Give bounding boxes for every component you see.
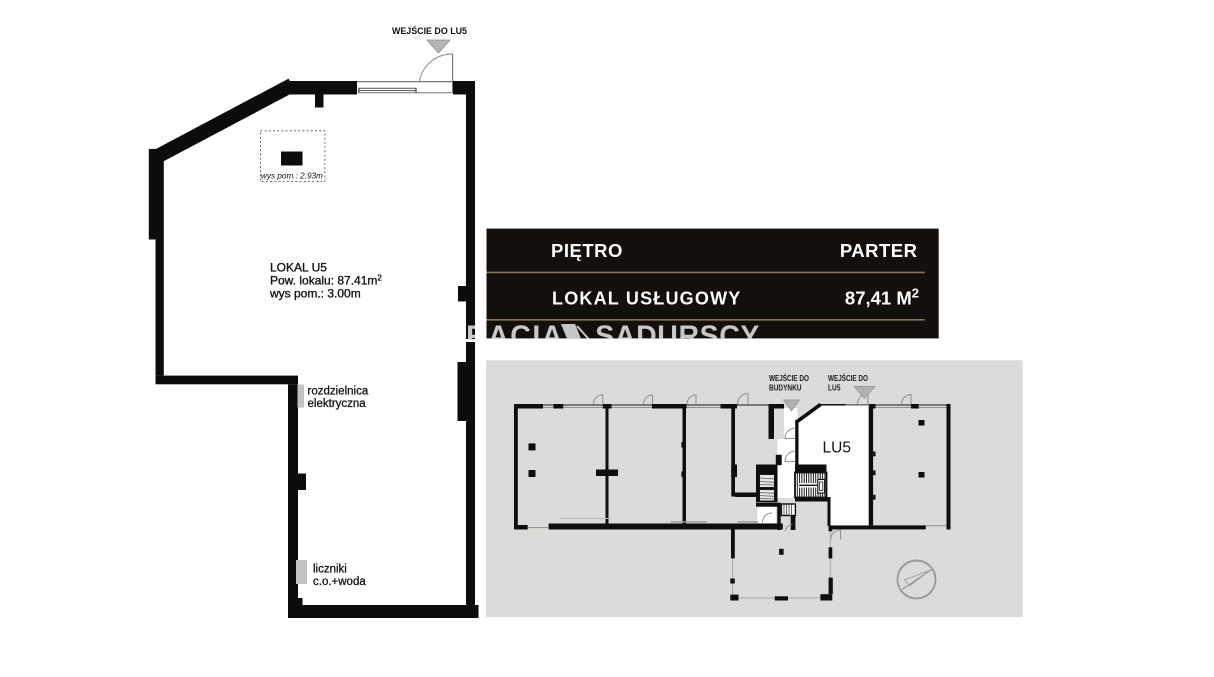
svg-text:LU5: LU5 — [823, 440, 851, 457]
svg-text:c.o.+woda: c.o.+woda — [313, 576, 366, 588]
svg-text:LOKAL U5: LOKAL U5 — [270, 261, 327, 275]
svg-text:wys pom.: 3.00m: wys pom.: 3.00m — [269, 287, 361, 301]
svg-text:BUDYNKU: BUDYNKU — [769, 384, 802, 393]
svg-text:WEJŚCIE DO: WEJŚCIE DO — [828, 374, 868, 383]
svg-text:LOKAL USŁUGOWY: LOKAL USŁUGOWY — [552, 289, 741, 309]
svg-text:liczniki: liczniki — [313, 564, 347, 576]
svg-text:Pow. lokalu: 87.41m2: Pow. lokalu: 87.41m2 — [270, 274, 382, 288]
svg-text:WEJŚCIE DO: WEJŚCIE DO — [769, 374, 809, 383]
svg-text:rozdzielnica: rozdzielnica — [308, 386, 369, 398]
svg-text:wys pom.: 2.93m: wys pom.: 2.93m — [261, 172, 323, 181]
svg-text:87,41 M2: 87,41 M2 — [845, 286, 919, 309]
svg-text:elektryczna: elektryczna — [308, 398, 367, 410]
svg-text:LU5: LU5 — [828, 384, 841, 393]
svg-text:PIĘTRO: PIĘTRO — [551, 240, 623, 261]
svg-text:WEJŚCIE DO LU5: WEJŚCIE DO LU5 — [392, 25, 467, 36]
svg-text:PARTER: PARTER — [840, 240, 918, 261]
